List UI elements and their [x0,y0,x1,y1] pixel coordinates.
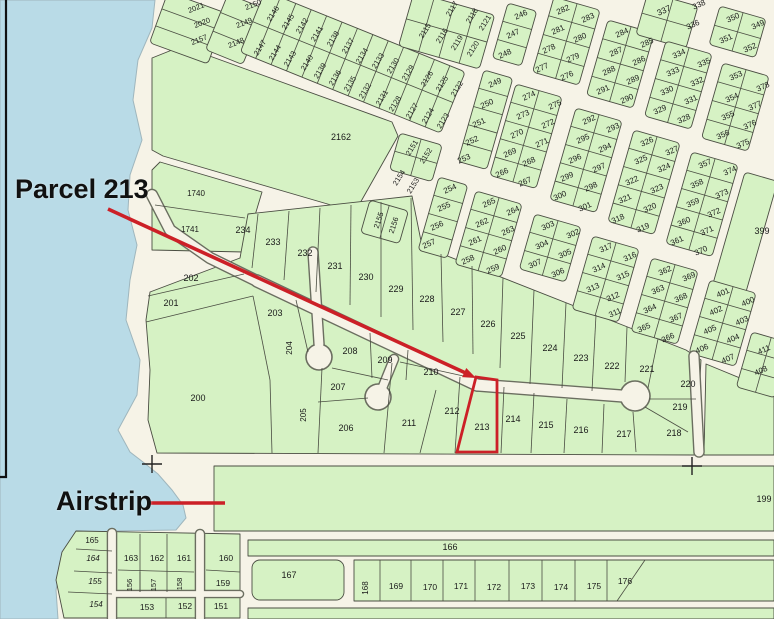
parcel-label: 1740 [187,189,205,198]
parcel-label: 232 [297,248,312,258]
parcel-label: 157 [149,579,158,592]
parcel-label: 209 [377,355,392,365]
parcel-label: 215 [538,420,553,430]
parcel-label: 161 [177,553,191,563]
parcel-label: 205 [299,408,308,422]
parcel-label: 2162 [331,132,351,142]
parcel-label: 229 [388,284,403,294]
parcel-label: 206 [338,423,353,433]
cul-de-sac [621,382,649,410]
parcel-area [248,540,774,556]
parcel-label: 201 [163,298,178,308]
parcel-label: 231 [327,261,342,271]
parcel-label: 1741 [181,225,199,234]
parcel-label: 176 [618,576,632,586]
parcel-label: 154 [89,600,103,609]
parcel-label: 227 [450,307,465,317]
parcel-label: 224 [542,343,557,353]
parcel-label: 212 [444,406,459,416]
parcel-label: 152 [178,601,192,611]
parcel-label: 169 [389,581,403,591]
parcel-label: 204 [285,341,294,355]
parcel-label: 163 [124,553,138,563]
parcel-label: 226 [480,319,495,329]
parcel-area [248,608,774,619]
parcel-label: 168 [361,581,370,595]
parcel-label: 211 [402,418,416,428]
parcel-label: 213 [474,422,489,432]
parcel-label: 172 [487,582,501,592]
parcel-label: 151 [214,601,228,611]
cul-de-sac [307,345,331,369]
parcel-label: 171 [454,581,468,591]
parcel-label: 156 [125,579,134,592]
parcel-area [214,466,774,531]
parcel-area [252,560,344,600]
parcel-label: 221 [639,364,654,374]
parcel-label: 199 [756,494,771,504]
parcel-label: 217 [616,429,631,439]
parcel-label: 155 [88,577,102,586]
parcel-label: 174 [554,582,568,592]
parcel-label: 202 [183,273,198,283]
parcel-213-callout-label: Parcel 213 [15,174,149,205]
parcel-label: 166 [442,542,457,552]
parcel-label: 153 [140,602,154,612]
parcel-label: 218 [666,428,681,438]
parcel-label: 164 [86,554,100,563]
parcel-label: 170 [423,582,437,592]
parcel-label: 160 [219,553,233,563]
parcel-label: 219 [672,402,687,412]
parcel-label: 223 [573,353,588,363]
parcel-area [354,560,774,601]
parcel-label: 159 [216,578,230,588]
parcel-label: 210 [423,367,438,377]
road [313,252,319,344]
parcel-label: 173 [521,581,535,591]
parcel-label: 399 [754,226,769,236]
parcel-label: 203 [267,308,282,318]
parcel-label: 214 [505,414,520,424]
parcel-label: 228 [419,294,434,304]
parcel-label: 222 [604,361,619,371]
parcel-map-canvas[interactable]: 2021202021572150214921482146214521422141… [0,0,774,619]
parcel-label: 225 [510,331,525,341]
parcel-label: 165 [85,536,99,545]
parcel-label: 207 [330,382,345,392]
parcel-label: 208 [342,346,357,356]
parcel-label: 162 [150,553,164,563]
parcel-label: 175 [587,581,601,591]
parcel-label: 167 [281,570,296,580]
parcel-label: 200 [190,393,205,403]
airstrip-callout-label: Airstrip [56,486,152,517]
parcel-label: 230 [358,272,373,282]
plat-map: 2021202021572150214921482146214521422141… [0,0,774,619]
road [694,356,699,452]
parcel-label: 234 [235,225,250,235]
parcel-label: 158 [175,578,184,591]
parcel-label: 216 [573,425,588,435]
parcel-label: 233 [265,237,280,247]
cul-de-sac [366,385,390,409]
parcel-label: 220 [680,379,695,389]
